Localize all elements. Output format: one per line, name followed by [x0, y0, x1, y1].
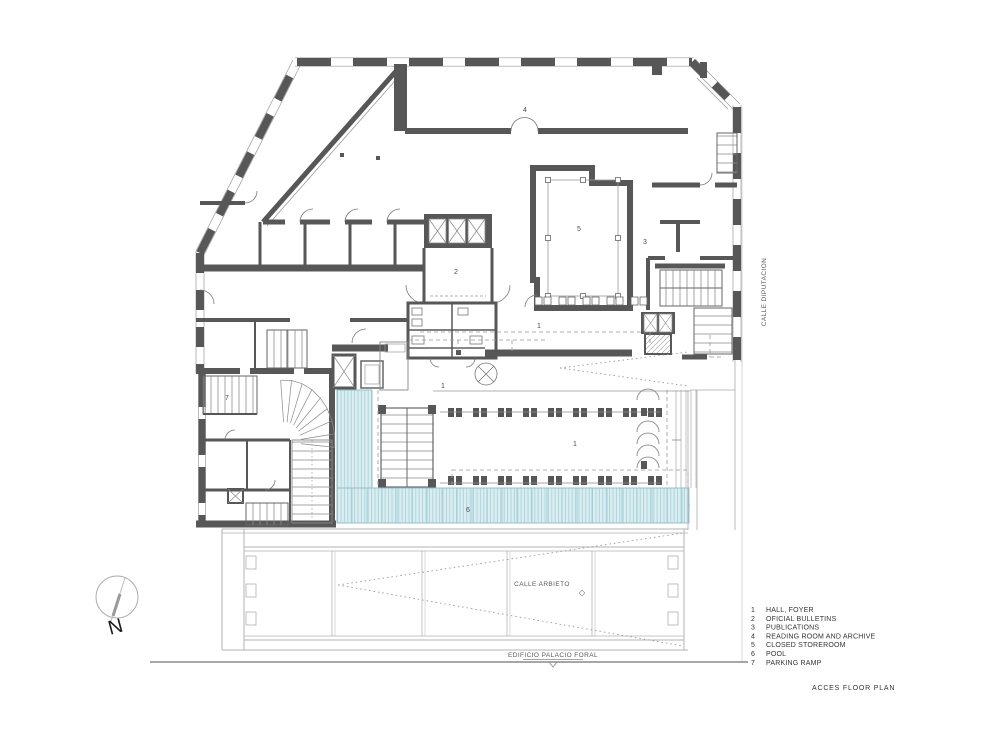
legend-item-number: 2	[751, 616, 755, 623]
site-boundary: EDIFICIO PALACIO FORAL	[150, 652, 748, 667]
sheet-title: ACCES FLOOR PLAN	[812, 685, 895, 692]
room-label-6: 6	[466, 507, 470, 514]
legend-item-label: POOL	[766, 651, 786, 658]
street-label-arbieto: CALLE ARBIETO	[514, 581, 570, 588]
legend-item-label: CLOSED STOREROOM	[766, 642, 846, 649]
room-label-1: 1	[441, 383, 445, 390]
hall-room1	[378, 352, 696, 505]
legend: 1HALL, FOYER2OFICIAL BULLETINS3PUBLICATI…	[751, 607, 876, 667]
legend-item-label: READING ROOM AND ARCHIVE	[766, 633, 876, 640]
legend-item-number: 4	[751, 633, 755, 640]
bathroom-cluster	[408, 303, 496, 358]
floor-plan-drawing: EDIFICIO PALACIO FORAL CALLE ARBIETO CAL…	[0, 0, 1000, 750]
room-label-2: 2	[454, 269, 458, 276]
legend-item-label: PARKING RAMP	[766, 660, 822, 667]
legend-item-number: 5	[751, 642, 755, 649]
street-label-diputacion: CALLE DIPUTACION	[761, 258, 768, 326]
room-5-storeroom	[525, 168, 630, 308]
legend-item-number: 6	[751, 651, 755, 658]
room-label-7: 7	[225, 395, 229, 402]
north-arrow: N	[96, 576, 138, 640]
legend-item-label: PUBLICATIONS	[766, 625, 819, 632]
architectural-sheet: { "sheet": { "title": "ACCES FLOOR PLAN"…	[0, 0, 1000, 750]
legend-item-number: 7	[751, 660, 755, 667]
legend-item-number: 3	[751, 625, 755, 632]
legend-item-label: HALL, FOYER	[766, 607, 814, 614]
mid-left-stair	[267, 330, 307, 368]
room-label-1: 1	[537, 323, 541, 330]
right-elevators	[641, 312, 675, 354]
room-label-5: 5	[577, 226, 581, 233]
parking-ramp	[203, 376, 335, 525]
room-label-3: 3	[643, 239, 647, 246]
room-label-4: 4	[523, 107, 527, 114]
room-label-1: 1	[573, 441, 577, 448]
building-label: EDIFICIO PALACIO FORAL	[508, 652, 598, 659]
north-letter: N	[106, 615, 126, 640]
room-2-elevators	[406, 214, 510, 303]
legend-item-number: 1	[751, 607, 755, 614]
legend-item-label: OFICIAL BULLETINS	[766, 616, 837, 623]
courtyard-boundary	[688, 360, 735, 530]
